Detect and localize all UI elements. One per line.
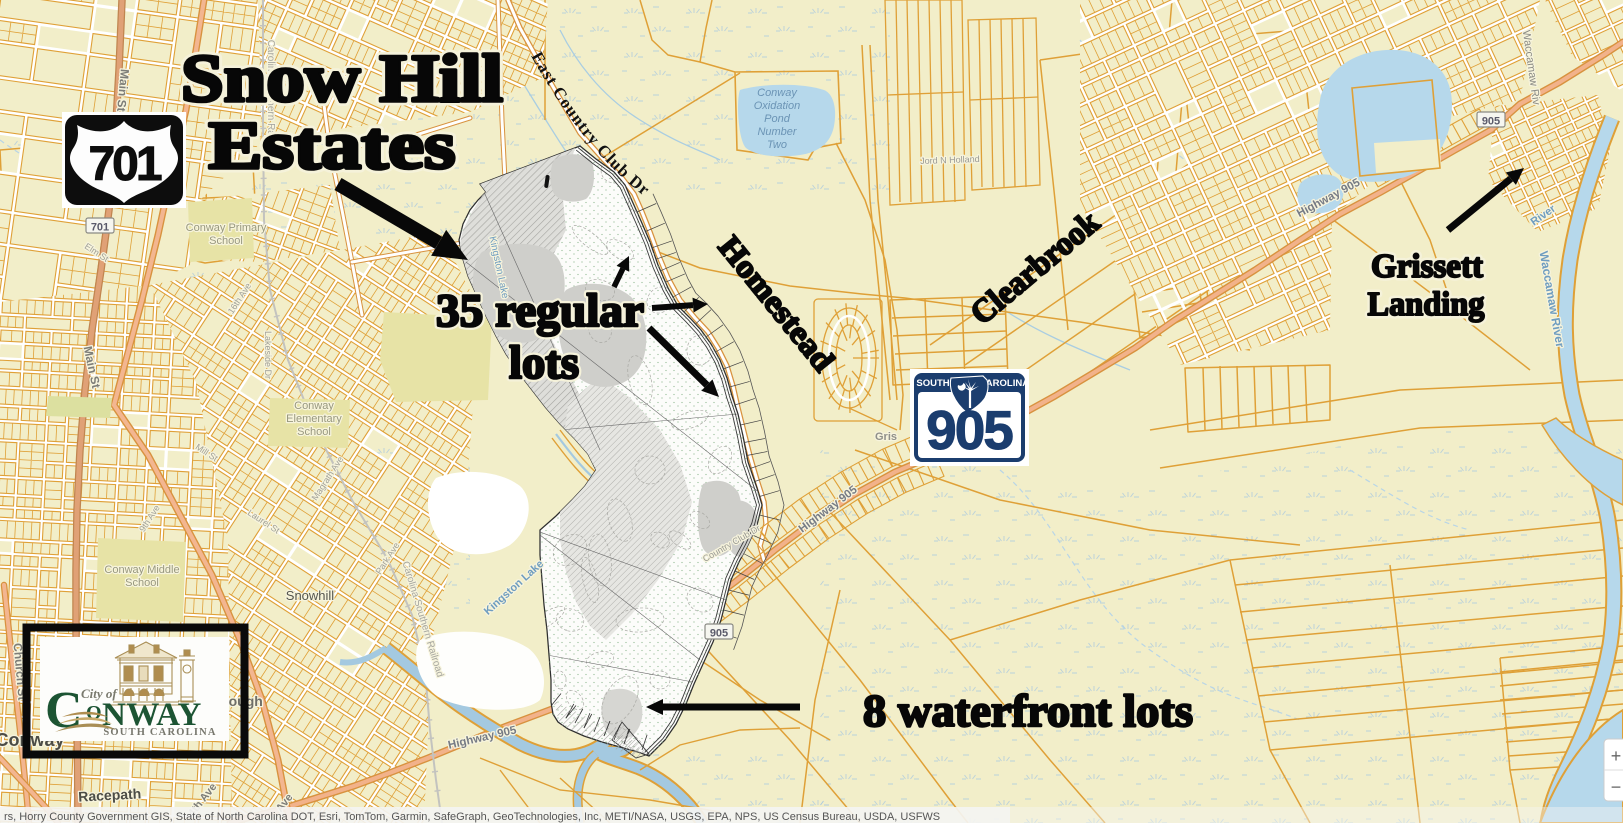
svg-text:Pond: Pond xyxy=(764,113,791,125)
svg-text:8 waterfront lots: 8 waterfront lots xyxy=(863,685,1193,736)
svg-text:Number: Number xyxy=(757,126,797,138)
svg-text:Conway Middle: Conway Middle xyxy=(104,564,179,576)
svg-text:35 regular: 35 regular xyxy=(436,285,644,337)
svg-text:Oxidation: Oxidation xyxy=(754,100,800,112)
svg-text:−: − xyxy=(1611,777,1622,797)
svg-text:School: School xyxy=(297,426,331,438)
svg-text:Snow Hill: Snow Hill xyxy=(181,40,503,116)
svg-text:School: School xyxy=(209,235,243,247)
svg-text:Lakeside Dr: Lakeside Dr xyxy=(263,331,273,379)
svg-text:C: C xyxy=(45,682,83,739)
svg-text:SOUTH: SOUTH xyxy=(916,378,949,389)
svg-text:Conway: Conway xyxy=(757,87,798,99)
svg-text:Elementary: Elementary xyxy=(286,413,342,425)
svg-text:rs, Horry County Government GI: rs, Horry County Government GIS, State o… xyxy=(4,811,940,823)
svg-text:Gris: Gris xyxy=(875,431,897,443)
svg-text:Landing: Landing xyxy=(1368,286,1485,323)
svg-text:SOUTH CAROLINA: SOUTH CAROLINA xyxy=(103,727,216,738)
svg-text:905: 905 xyxy=(926,399,1013,461)
svg-text:lots: lots xyxy=(509,337,579,389)
svg-text:Conway Primary: Conway Primary xyxy=(186,222,267,234)
svg-text:Racepath: Racepath xyxy=(78,785,142,804)
svg-text:Snowhill: Snowhill xyxy=(286,588,335,603)
svg-text:Jord N Holland: Jord N Holland xyxy=(920,154,980,166)
svg-text:Estates: Estates xyxy=(209,107,456,183)
svg-text:Two: Two xyxy=(767,139,787,151)
svg-text:School: School xyxy=(125,577,159,589)
svg-text:701: 701 xyxy=(88,138,161,191)
svg-text:City of: City of xyxy=(81,686,118,701)
svg-text:+: + xyxy=(1611,746,1622,766)
svg-text:701: 701 xyxy=(91,222,109,234)
svg-text:Grissett: Grissett xyxy=(1371,248,1484,285)
svg-text:905: 905 xyxy=(710,628,728,640)
svg-text:905: 905 xyxy=(1482,116,1500,128)
svg-text:Conway: Conway xyxy=(294,400,334,412)
